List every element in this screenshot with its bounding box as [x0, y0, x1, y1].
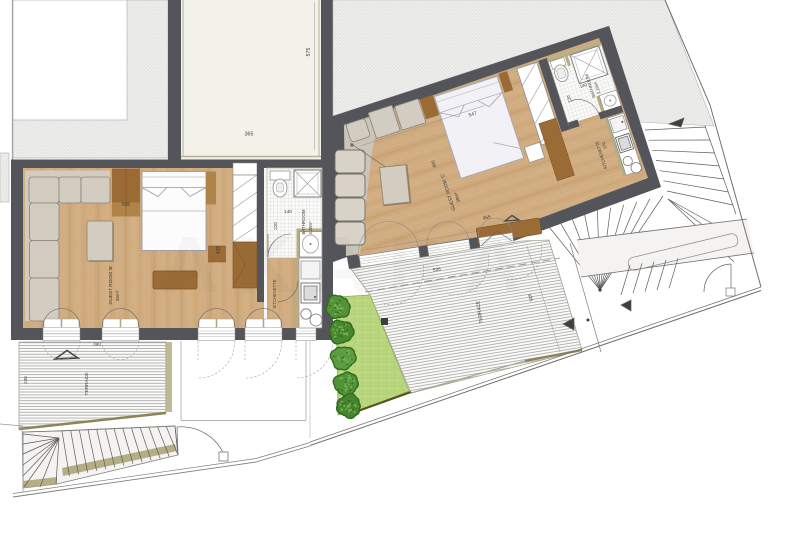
svg-text:140: 140	[284, 209, 292, 214]
svg-text:GUEST ROOM 'B': GUEST ROOM 'B'	[108, 265, 114, 304]
svg-text:575: 575	[306, 48, 312, 57]
svg-text:AKARA: AKARA	[161, 220, 540, 309]
svg-text:365: 365	[245, 132, 254, 138]
svg-text:505: 505	[122, 202, 131, 208]
svg-text:245: 245	[23, 376, 28, 384]
svg-text:38m²: 38m²	[115, 290, 120, 301]
svg-text:TERRACE: TERRACE	[84, 373, 90, 396]
